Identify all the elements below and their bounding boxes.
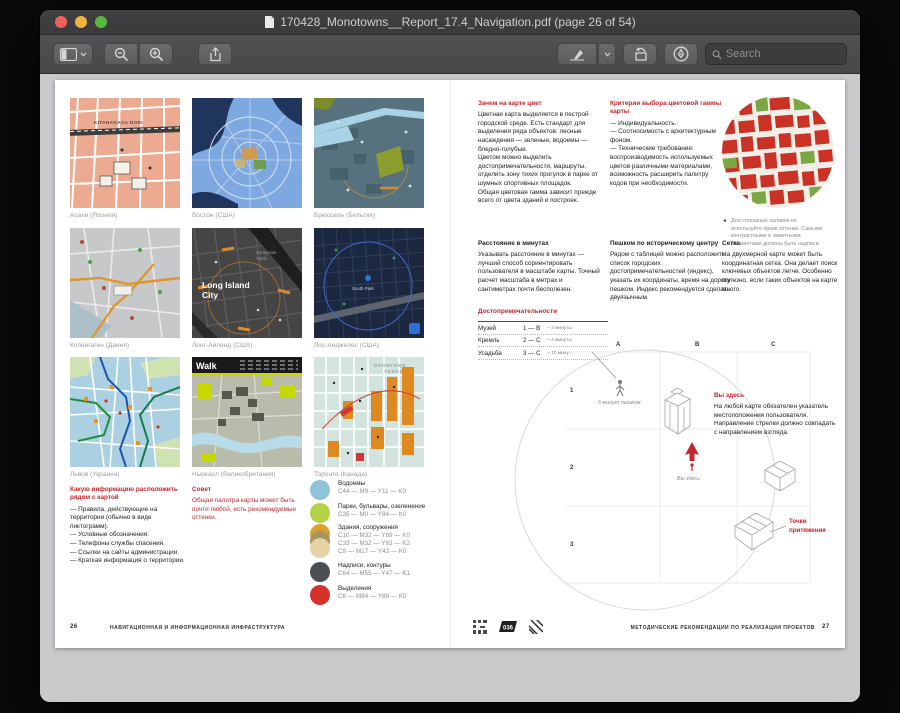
wayfinding-diagram: A B C 1 2 3 5 минут пешком [510, 330, 845, 630]
color-swatch-park [310, 503, 330, 523]
walking-block: Пешком по историческому центру Рядом с т… [610, 240, 736, 303]
rotate-button[interactable] [623, 43, 657, 65]
you-are-here-arrow [685, 442, 699, 471]
pdf-spread: KITANAGASA DORI Асахи (Япония) [55, 80, 845, 648]
publisher-logo-icon [473, 620, 487, 634]
grid-row-label: 1 [570, 388, 574, 394]
preview-window: 170428_Monotowns__Report_17.4_Navigation… [40, 10, 860, 702]
section-heading: Расстояние в минутах [478, 240, 601, 248]
map-thumbnail-asahi: KITANAGASA DORI Асахи (Япония) [70, 98, 180, 219]
minutes-block: Расстояние в минутах Указывать расстояни… [478, 240, 601, 294]
chevron-down-icon [604, 52, 611, 57]
share-icon [209, 47, 222, 62]
attraction-label: Точки [789, 518, 807, 525]
map-thumbnail-newcastle: Walk Ньюкасл (Великобритания) [192, 357, 302, 478]
palette-code: C9 — M17 — Y43 — K0 [338, 548, 410, 556]
map-caption: Бостон (США) [192, 212, 302, 219]
circular-map-example [722, 96, 834, 213]
map-art-asahi: KITANAGASA DORI [70, 98, 180, 208]
palette-code: C6 — M94 — Y89 — K0 [338, 593, 406, 601]
sidebar-toggle-button[interactable] [53, 43, 93, 65]
map-thumbnail-long-island: Long Island City Sunnyside Yards Лонг-Ай… [192, 228, 302, 349]
map-label: DOWNTOWN [374, 363, 406, 368]
map-thumbnail-toronto: DOWNTOWN YONGE Торонто (Канада) [314, 357, 424, 478]
palette-code: C64 — M55 — Y47 — K1 [338, 570, 410, 578]
palette-name: Водоемы [338, 480, 406, 488]
palette-item-labels: Надписи, контуры C64 — M55 — Y47 — K1 [310, 562, 445, 582]
section-text: Рядом с таблицей можно расположить списо… [610, 251, 736, 302]
titlebar: 170428_Monotowns__Report_17.4_Navigation… [40, 10, 860, 35]
tip-text: Общая палитра карты может быть почти люб… [192, 497, 304, 523]
map-label: South Park [352, 286, 375, 291]
info-item: — Правила, действующие на территории (об… [70, 506, 188, 532]
hatch-logo-icon [529, 620, 543, 634]
tip-block: Совет Общая палитра карты может быть поч… [192, 486, 304, 523]
pedestrian-icon [616, 380, 624, 396]
palette-code: C10 — M32 — Y89 — K0 [338, 532, 410, 540]
page-26: KITANAGASA DORI Асахи (Япония) [55, 80, 450, 648]
map-caption: Торонто (Канада) [314, 471, 424, 478]
section-heading: Критерии выбора цветовой гаммы карты [610, 100, 724, 117]
section-text: На любой карте обязателен указатель мест… [714, 403, 840, 437]
search-input[interactable] [726, 48, 840, 60]
map-art-boston [192, 98, 302, 208]
minimize-button[interactable] [75, 16, 87, 28]
chevron-down-icon [80, 52, 87, 57]
markup-toolbar-button[interactable] [664, 43, 698, 65]
map-art-lviv [70, 357, 180, 467]
color-swatch-water [310, 480, 330, 500]
page-number-right: 27 [822, 624, 830, 630]
criteria-item: — Соотносимость с архитектурным фоном. [610, 128, 724, 145]
paragraph: Общая цветовая гамма зависит прежде всег… [478, 189, 599, 206]
you-are-here-block: Вы здесь На любой карте обязателен указа… [714, 392, 840, 438]
map-thumbnail-los-angeles: South Park Лос-Анджелес (США) [314, 228, 424, 349]
map-art-los-angeles: South Park [314, 228, 424, 338]
traffic-lights [55, 16, 107, 28]
grid-col-label: A [616, 342, 621, 348]
pdf-content-area: KITANAGASA DORI Асахи (Япония) [40, 74, 860, 702]
info-item: — Ссылки на сайты администрации. [70, 549, 188, 558]
search-field[interactable] [705, 43, 847, 65]
grid-row-label: 2 [570, 465, 574, 471]
grid-col-label: B [695, 342, 700, 348]
color-swatch-highlight [310, 585, 330, 605]
map-label: YONGE [384, 369, 403, 374]
map-caption: Лонг-Айленд (США) [192, 342, 302, 349]
criteria-block: Критерии выбора цветовой гаммы карты — И… [610, 100, 724, 188]
map-art-toronto: DOWNTOWN YONGE [314, 357, 424, 467]
grid-block: Сетка На двухмерной карте может быть коо… [722, 240, 840, 294]
paragraph: Цветная карта выделяется в пестрой город… [478, 111, 599, 154]
map-art-long-island: Long Island City Sunnyside Yards [192, 228, 302, 338]
map-label: Long Island [202, 280, 250, 290]
grid-row-label: 3 [570, 542, 574, 548]
map-caption: Копенгаген (Дания) [70, 342, 180, 349]
section-text: Указывать расстояние в минутах — лучший … [478, 251, 601, 294]
map-art-newcastle: Walk [192, 357, 302, 467]
markup-pen-button[interactable] [557, 43, 597, 65]
palette-name: Надписи, контуры [338, 562, 410, 570]
window-title: 170428_Monotowns__Report_17.4_Navigation… [280, 15, 636, 29]
badge-text: 036 [503, 626, 514, 632]
info-block: Какую информацию расположить рядом с кар… [70, 486, 188, 566]
paragraph: Цветом можно выделить достопримечательно… [478, 154, 599, 188]
fullscreen-button[interactable] [95, 16, 107, 28]
zoom-out-icon [114, 47, 129, 62]
footer-right-title: МЕТОДИЧЕСКИЕ РЕКОМЕНДАЦИИ ПО РЕАЛИЗАЦИИ … [610, 625, 815, 631]
building-isometric-3 [735, 513, 773, 550]
zoom-out-button[interactable] [104, 43, 138, 65]
palette-code: C44 — M9 — Y11 — K0 [338, 488, 406, 496]
color-swatch-building-3 [310, 538, 330, 558]
map-art-brussels [314, 98, 424, 208]
markup-pen-dropdown[interactable] [598, 43, 616, 65]
criteria-item: — Индивидуальность. [610, 120, 724, 129]
document-icon [264, 16, 275, 29]
map-label: Walk [196, 361, 218, 371]
footer-logos: 036 [473, 620, 543, 634]
palette-code: C33 — M32 — Y63 — K2 [338, 540, 410, 548]
map-caption: Львов (Украина) [70, 471, 180, 478]
map-caption: Брюссель (Бельгия) [314, 212, 424, 219]
color-swatch-labels [310, 562, 330, 582]
palette-code: C35 — M0 — Y84 — K0 [338, 511, 425, 519]
sidebar-icon [60, 48, 77, 61]
zoom-in-button[interactable] [139, 43, 173, 65]
share-button[interactable] [198, 43, 232, 65]
walking-radius-circle [515, 350, 775, 610]
palette-item-parks: Парки, бульвары, озеленение C35 — M0 — Y… [310, 503, 445, 523]
info-heading: Какую информацию расположить рядом с кар… [70, 486, 188, 503]
search-icon [712, 49, 722, 60]
toolbar [40, 35, 860, 74]
info-item: — Условные обозначения. [70, 531, 188, 540]
map-label: Yards [256, 256, 268, 261]
palette-name: Здания, сооружения [338, 524, 410, 532]
map-thumbnail-lviv: Львов (Украина) [70, 357, 180, 478]
section-text: На двухмерной карте может быть координат… [722, 251, 840, 294]
page-27: Зачем на карте цвет Цветная карта выделя… [450, 80, 845, 648]
palette-name: Парки, бульвары, озеленение [338, 503, 425, 511]
pen-nib-circle-icon [673, 46, 689, 62]
map-thumbnail-brussels: Брюссель (Бельгия) [314, 98, 424, 219]
grid-col-label: C [771, 342, 776, 348]
rotate-left-icon [632, 47, 648, 62]
marker-pen-icon [569, 47, 585, 61]
info-item: — Краткая информация о территории. [70, 557, 188, 566]
footer-left-title: НАВИГАЦИОННАЯ И ИНФОРМАЦИОННАЯ ИНФРАСТРУ… [110, 625, 285, 631]
section-heading: Пешком по историческому центру [610, 240, 736, 248]
map-label: KITANAGASA DORI [94, 120, 143, 125]
zoom-in-icon [149, 47, 164, 62]
badge-036-icon: 036 [498, 620, 518, 634]
why-color-block: Зачем на карте цвет Цветная карта выделя… [478, 100, 599, 206]
here-label: Вы здесь [677, 476, 700, 482]
close-button[interactable] [55, 16, 67, 28]
palette-item-highlight: Выделения C6 — M94 — Y89 — K0 [310, 585, 445, 605]
palette-item-buildings: Здания, сооружения C10 — M32 — Y89 — K0 … [310, 524, 445, 558]
map-caption: Асахи (Япония) [70, 212, 180, 219]
info-item: — Телефоны службы спасения. [70, 540, 188, 549]
palette-name: Выделения [338, 585, 406, 593]
building-isometric-2 [765, 461, 795, 491]
palette-item-water: Водоемы C44 — M9 — Y11 — K0 [310, 480, 445, 500]
map-caption: Ньюкасл (Великобритания) [192, 471, 302, 478]
map-thumbnail-boston: Бостон (США) [192, 98, 302, 219]
map-caption: Лос-Анджелес (США) [314, 342, 424, 349]
map-art-copenhagen [70, 228, 180, 338]
section-heading: Зачем на карте цвет [478, 100, 599, 108]
map-art-circular [722, 96, 834, 208]
criteria-item: — Технические требования: воспроизводимо… [610, 145, 724, 188]
section-heading: Вы здесь [714, 392, 840, 400]
tip-heading: Совет [192, 486, 304, 494]
attraction-label: притяжения [789, 527, 826, 534]
map-thumbnail-copenhagen: Копенгаген (Дания) [70, 228, 180, 349]
map-label: City [202, 290, 218, 300]
walk-label: 5 минут пешком [598, 400, 641, 406]
building-isometric-1 [665, 388, 690, 434]
map-label: Sunnyside [256, 250, 277, 255]
page-number-left: 26 [70, 624, 78, 630]
section-heading: Сетка [722, 240, 840, 248]
landmarks-heading: Достопримечательности [478, 308, 608, 316]
